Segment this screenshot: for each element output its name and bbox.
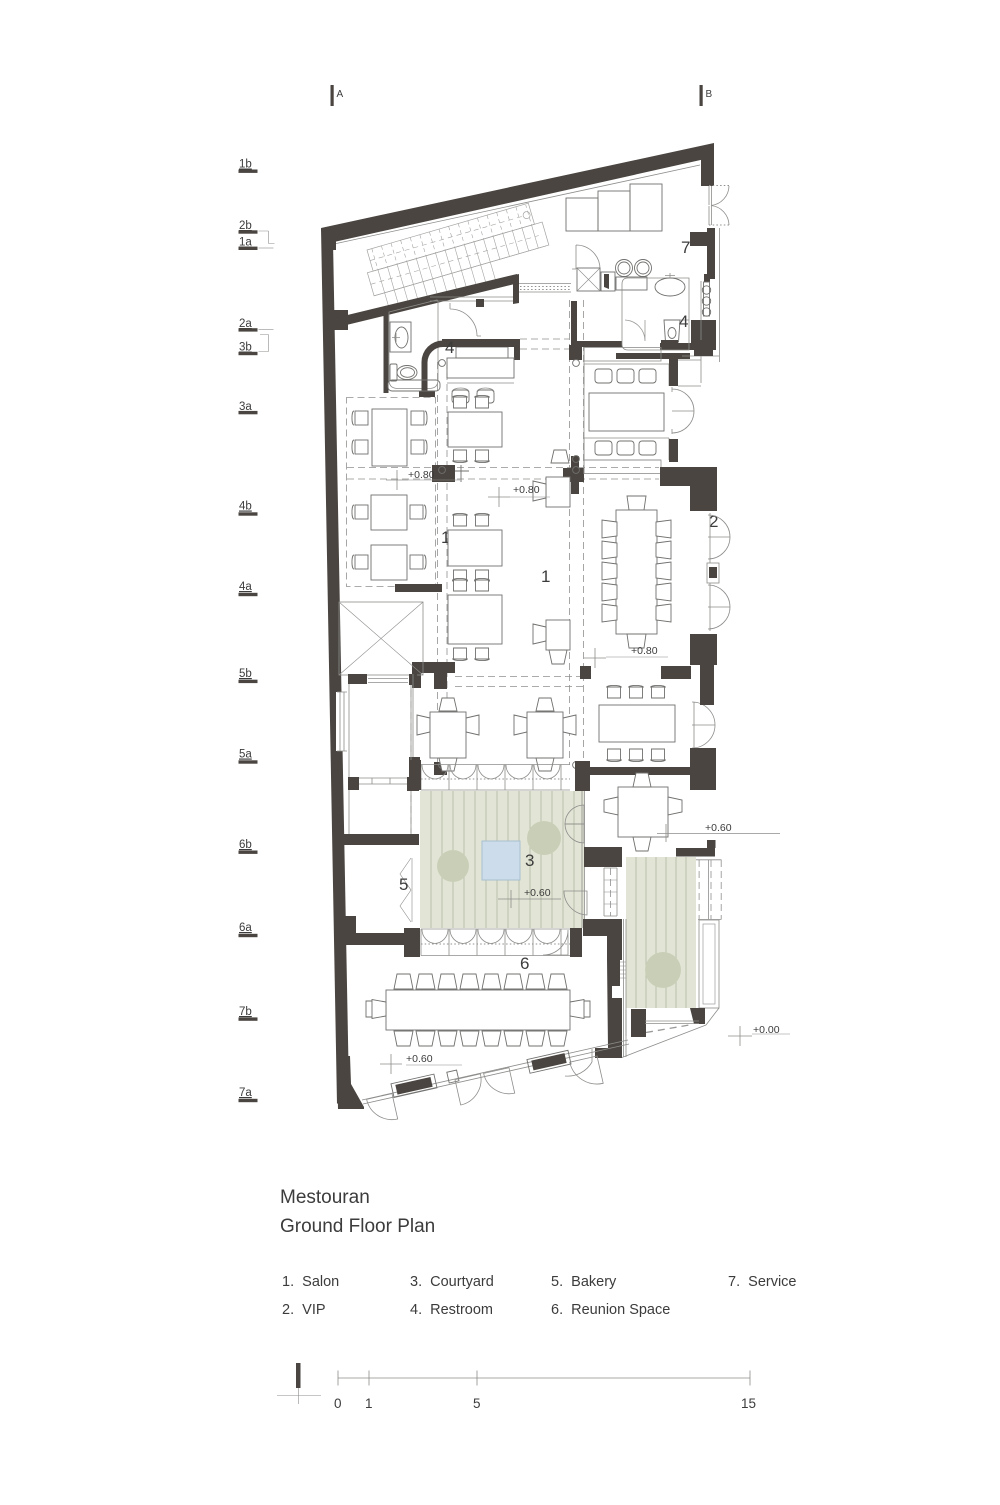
- svg-text:+0.60: +0.60: [406, 1053, 433, 1065]
- svg-text:1. Salon: 1. Salon: [282, 1274, 339, 1290]
- svg-text:6b: 6b: [239, 839, 252, 851]
- svg-text:4: 4: [679, 312, 688, 331]
- svg-text:Ground Floor Plan: Ground Floor Plan: [280, 1216, 435, 1237]
- svg-text:5b: 5b: [239, 668, 252, 680]
- svg-text:3. Courtyard: 3. Courtyard: [410, 1274, 494, 1290]
- svg-text:A: A: [337, 89, 344, 100]
- svg-text:2b: 2b: [239, 220, 252, 232]
- svg-text:1: 1: [541, 567, 550, 586]
- svg-text:+0.60: +0.60: [524, 887, 551, 899]
- svg-text:0: 0: [334, 1396, 342, 1411]
- svg-text:7b: 7b: [239, 1006, 252, 1018]
- svg-text:5. Bakery: 5. Bakery: [551, 1274, 617, 1290]
- svg-text:+0.80: +0.80: [631, 645, 658, 657]
- svg-text:1b: 1b: [239, 159, 252, 171]
- svg-text:4a: 4a: [239, 581, 252, 593]
- svg-text:B: B: [706, 89, 713, 100]
- svg-text:+0.60: +0.60: [705, 822, 732, 834]
- svg-text:3b: 3b: [239, 342, 252, 354]
- svg-text:7. Service: 7. Service: [728, 1274, 797, 1290]
- svg-text:+0.80: +0.80: [513, 484, 540, 496]
- svg-text:3: 3: [525, 851, 534, 870]
- svg-text:+0.80: +0.80: [408, 469, 435, 481]
- svg-text:Mestouran: Mestouran: [280, 1187, 370, 1208]
- svg-text:1: 1: [365, 1396, 373, 1411]
- svg-text:5: 5: [399, 875, 408, 894]
- svg-text:4b: 4b: [239, 501, 252, 513]
- svg-text:5a: 5a: [239, 749, 252, 761]
- svg-text:7a: 7a: [239, 1087, 252, 1099]
- svg-text:6: 6: [520, 954, 529, 973]
- svg-text:4: 4: [445, 338, 454, 357]
- svg-text:7: 7: [681, 238, 690, 257]
- svg-text:4. Restroom: 4. Restroom: [410, 1302, 493, 1318]
- svg-text:2. VIP: 2. VIP: [282, 1302, 326, 1318]
- svg-text:5: 5: [473, 1396, 481, 1411]
- svg-text:6a: 6a: [239, 922, 252, 934]
- svg-text:6. Reunion Space: 6. Reunion Space: [551, 1302, 670, 1318]
- svg-text:15: 15: [741, 1396, 756, 1411]
